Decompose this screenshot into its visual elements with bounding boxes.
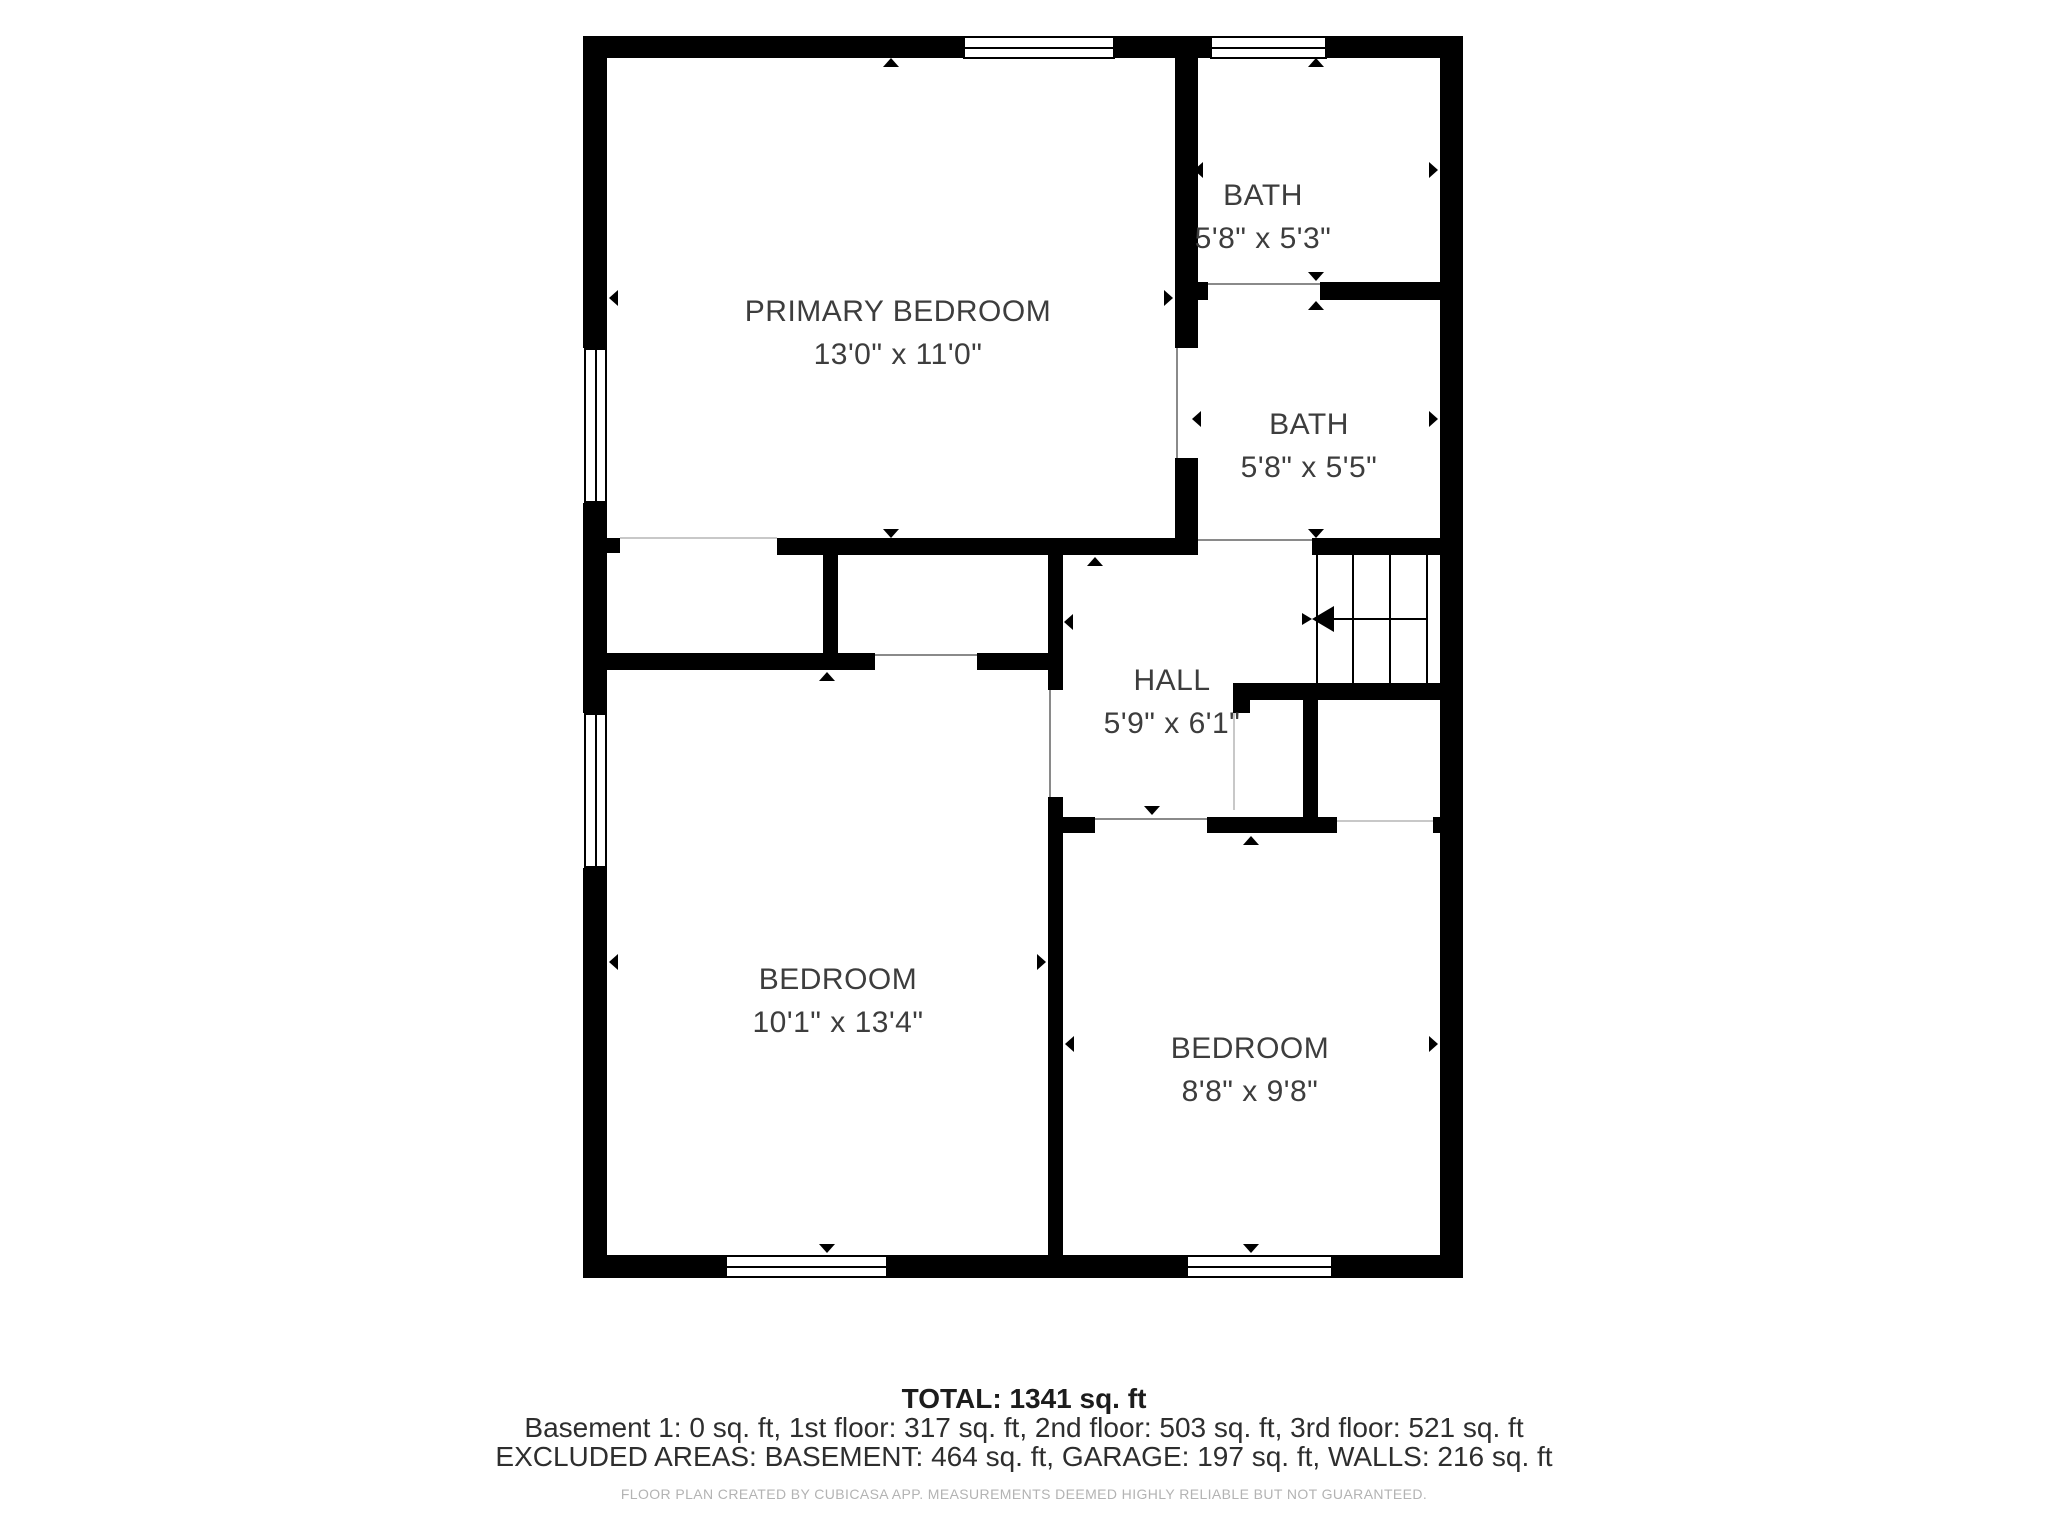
dimension-marker	[819, 672, 835, 681]
dimension-marker	[1429, 162, 1438, 178]
dimension-marker	[1192, 411, 1201, 427]
window-left-bedroom1	[584, 713, 607, 868]
dimension-marker	[1164, 290, 1173, 306]
room-name: BATH	[1241, 403, 1378, 446]
dimension-marker	[1308, 529, 1324, 538]
door-leaf-primary-to-bath2	[1176, 348, 1178, 458]
wall-closet-right	[823, 555, 838, 653]
window-pane-line	[965, 47, 1113, 49]
dimension-marker	[1065, 1036, 1074, 1052]
total-area-text: TOTAL: 1341 sq. ft	[0, 1383, 2048, 1415]
room-label-hall: HALL 5'9" x 6'1"	[1104, 659, 1241, 745]
disclaimer-text: FLOOR PLAN CREATED BY CUBICASA APP. MEAS…	[0, 1486, 2048, 1502]
room-name: HALL	[1104, 659, 1241, 702]
wall-bedroom2-top-right-cap	[1433, 817, 1463, 833]
door-leaf-hall-to-bedroom2	[1095, 818, 1207, 820]
dimension-marker	[609, 954, 618, 970]
stair-direction-arrow-tail-icon	[1302, 613, 1312, 625]
dimension-marker	[1037, 954, 1046, 970]
room-label-primary-bedroom: PRIMARY BEDROOM 13'0" x 11'0"	[745, 290, 1051, 376]
wall-exterior-right	[1440, 36, 1463, 1278]
door-leaf-closet-bedroom1	[875, 654, 977, 656]
room-label-bath-1: BATH 5'8" x 5'3"	[1195, 174, 1332, 260]
dimension-marker	[1087, 557, 1103, 566]
dimension-marker	[1308, 58, 1324, 67]
room-dimensions: 8'8" x 9'8"	[1171, 1070, 1330, 1113]
dimension-marker	[609, 290, 618, 306]
wall-bath1-bottom	[1320, 282, 1440, 300]
understairs-opening-line	[1337, 820, 1433, 822]
room-name: BATH	[1195, 174, 1332, 217]
room-label-bath-2: BATH 5'8" x 5'5"	[1241, 403, 1378, 489]
room-dimensions: 10'1" x 13'4"	[752, 1001, 923, 1044]
wall-exterior-left-lower	[583, 868, 607, 1278]
room-label-bedroom-2: BEDROOM 8'8" x 9'8"	[1171, 1027, 1330, 1113]
excluded-areas-text: EXCLUDED AREAS: BASEMENT: 464 sq. ft, GA…	[0, 1441, 2048, 1473]
dimension-marker	[1243, 836, 1259, 845]
dimension-marker	[1308, 272, 1324, 281]
floor-areas-text: Basement 1: 0 sq. ft, 1st floor: 317 sq.…	[0, 1412, 2048, 1444]
window-top-bath	[1210, 36, 1327, 59]
dimension-marker	[1308, 301, 1324, 310]
room-name: BEDROOM	[1171, 1027, 1330, 1070]
window-left-primary	[584, 348, 607, 503]
wall-bedroom-divider-upper	[1048, 555, 1063, 690]
door-leaf-hall-to-bedroom1	[1049, 690, 1051, 797]
room-name: PRIMARY BEDROOM	[745, 290, 1051, 333]
window-pane-line	[1212, 47, 1325, 49]
wall-exterior-left-upper	[583, 36, 607, 348]
dimension-marker	[1243, 1244, 1259, 1253]
dimension-marker	[1429, 411, 1438, 427]
door-leaf-bath2	[1198, 539, 1312, 541]
wall-exterior-left-middle	[583, 503, 607, 713]
wall-bedroom1-top-left	[607, 653, 875, 670]
wall-bath2-bottom	[1312, 538, 1440, 555]
wall-hall-top	[777, 538, 1175, 555]
room-dimensions: 5'9" x 6'1"	[1104, 702, 1241, 745]
room-dimensions: 13'0" x 11'0"	[745, 333, 1051, 376]
dimension-marker	[883, 58, 899, 67]
wall-stairs-bottom	[1233, 683, 1440, 700]
window-bottom-bedroom2	[1186, 1255, 1333, 1278]
window-pane-line	[1188, 1266, 1331, 1268]
room-label-bedroom-1: BEDROOM 10'1" x 13'4"	[752, 958, 923, 1044]
window-pane-line	[727, 1266, 886, 1268]
room-dimensions: 5'8" x 5'3"	[1195, 217, 1332, 260]
stair-direction-arrow-icon	[1312, 606, 1334, 632]
floor-plan-canvas: PRIMARY BEDROOM 13'0" x 11'0" BATH 5'8" …	[0, 0, 2048, 1536]
dimension-marker	[1429, 1036, 1438, 1052]
closet-open-boundary-line	[620, 537, 777, 539]
wall-bedroom-divider-lower	[1048, 797, 1063, 1255]
room-dimensions: 5'8" x 5'5"	[1241, 446, 1378, 489]
stair-direction-line	[1334, 618, 1427, 620]
wall-hall-bottom-left	[1062, 817, 1095, 833]
room-name: BEDROOM	[752, 958, 923, 1001]
dimension-marker	[819, 1244, 835, 1253]
wall-bath1-bottom-stub	[1192, 282, 1208, 300]
window-top-primary	[963, 36, 1115, 59]
window-pane-line	[595, 350, 597, 501]
door-leaf-bath1	[1208, 283, 1320, 285]
dimension-marker	[1064, 614, 1073, 630]
wall-understairs-left	[1303, 700, 1318, 822]
dimension-marker	[883, 529, 899, 538]
window-bottom-bedroom1	[725, 1255, 888, 1278]
wall-closet-left-stub	[607, 538, 620, 553]
window-pane-line	[595, 715, 597, 866]
dimension-marker	[1144, 806, 1160, 815]
